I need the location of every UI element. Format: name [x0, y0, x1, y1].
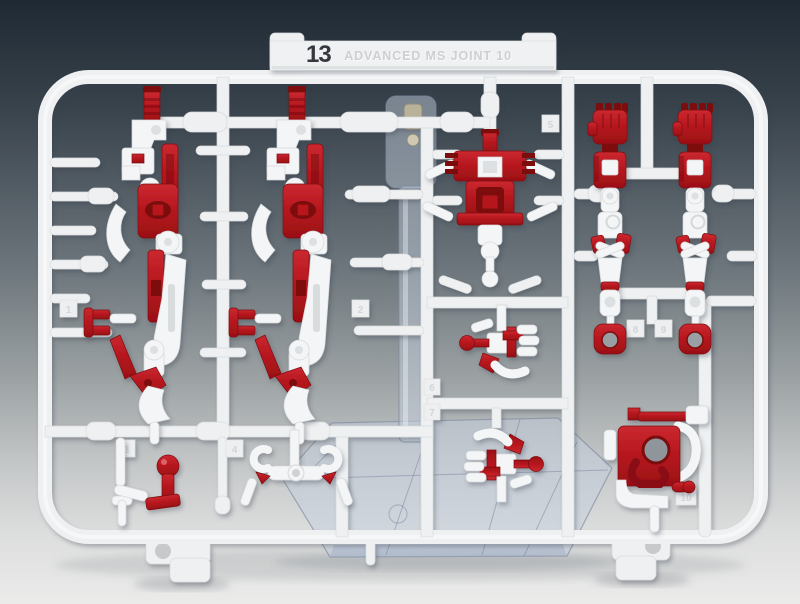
cell-number-9: 9	[661, 325, 667, 336]
sprue-photo: 1 2 3 4 5 6 7 8 9 10	[0, 0, 800, 604]
cell-number-1: 1	[66, 305, 72, 316]
cell-number-2: 2	[358, 305, 364, 316]
cell-number-10: 10	[680, 493, 692, 504]
cell-number-6: 6	[429, 383, 435, 394]
base-front-edge	[330, 544, 567, 557]
cell-number-5: 5	[548, 120, 554, 131]
sprue-foot-stub	[366, 541, 375, 565]
tag-number: 13	[306, 41, 331, 68]
tag-title: ADVANCED MS JOINT 10	[344, 49, 512, 63]
cell-number-8: 8	[633, 325, 639, 336]
cell-number-4: 4	[232, 445, 238, 456]
cell-number-7: 7	[429, 408, 435, 419]
photo-stage: 1 2 3 4 5 6 7 8 9 10	[0, 0, 800, 604]
